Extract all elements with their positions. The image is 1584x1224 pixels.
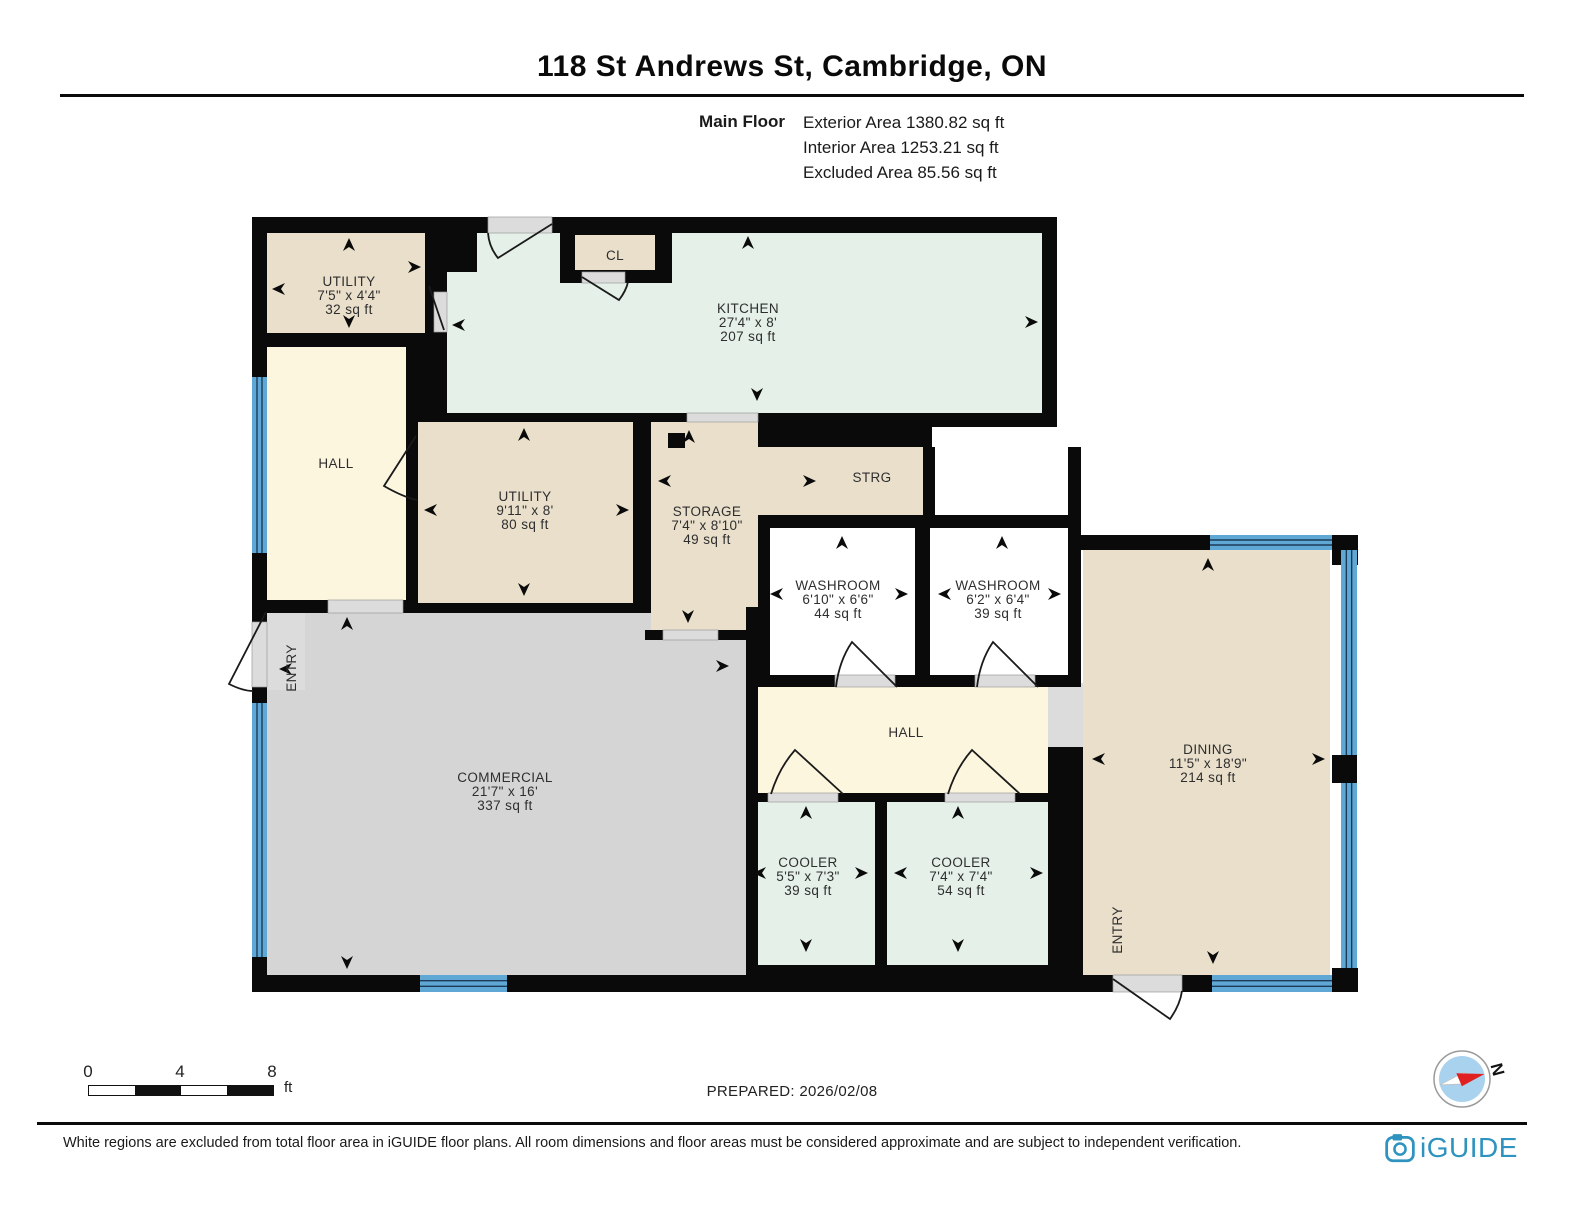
- room-label-cooler-1: COOLER5'5" x 7'3"39 sq ft: [776, 855, 839, 898]
- door-opening: [434, 292, 447, 332]
- door-opening: [252, 622, 267, 687]
- wall-segment: [758, 515, 923, 528]
- door-opening: [768, 793, 838, 802]
- room-fill: [932, 427, 1068, 528]
- window: [252, 377, 267, 553]
- wall-segment: [932, 413, 1057, 427]
- iguide-camera-icon: [1384, 1132, 1416, 1164]
- wall-segment: [633, 413, 651, 607]
- wall-segment: [252, 217, 488, 233]
- wall-segment: [1042, 218, 1057, 425]
- wall-segment: [1182, 975, 1212, 992]
- scale-tick-8: 8: [257, 1062, 287, 1082]
- wall-segment: [552, 217, 1057, 233]
- door-opening: [945, 793, 1015, 802]
- room-label-closet: CL: [606, 248, 624, 263]
- disclaimer-text: White regions are excluded from total fl…: [63, 1135, 1263, 1151]
- room-label-utility-2: UTILITY9'11" x 8'80 sq ft: [496, 489, 553, 532]
- room-label-utility-1: UTILITY7'5" x 4'4"32 sq ft: [317, 274, 380, 317]
- wall-segment: [252, 233, 267, 377]
- wall-segment: [447, 233, 477, 272]
- room-label-cooler-2: COOLER7'4" x 7'4"54 sq ft: [929, 855, 992, 898]
- door-opening: [328, 600, 403, 613]
- wall-segment: [406, 603, 651, 613]
- wall-segment: [915, 515, 1068, 528]
- wall-segment: [1068, 447, 1081, 687]
- wall-segment: [1083, 975, 1113, 992]
- footer-divider: [37, 1122, 1527, 1125]
- window: [420, 975, 507, 992]
- wall-segment: [746, 607, 758, 975]
- room-label-kitchen: KITCHEN27'4" x 8'207 sq ft: [717, 301, 779, 344]
- compass-north-label: N: [1486, 1061, 1508, 1078]
- room-label-entry-2: ENTRY: [1110, 906, 1125, 954]
- window: [252, 703, 267, 957]
- scale-tick-0: 0: [73, 1062, 103, 1082]
- wall-segment: [1081, 535, 1210, 550]
- support-column: [668, 433, 685, 448]
- door-opening: [663, 630, 718, 640]
- floor-plan-page: { "title": "118 St Andrews St, Cambridge…: [0, 0, 1584, 1224]
- wall-segment: [875, 793, 887, 975]
- wall-segment: [267, 333, 425, 347]
- iguide-logo: iGUIDE: [1384, 1132, 1518, 1164]
- room-label-hall-2: HALL: [888, 725, 923, 740]
- wall-segment: [1332, 755, 1357, 783]
- wall-segment: [507, 975, 760, 992]
- room-label-hall-1: HALL: [318, 456, 353, 471]
- wall-segment: [252, 687, 267, 703]
- wall-segment: [746, 965, 1083, 992]
- window: [1341, 550, 1357, 755]
- wall-segment: [252, 975, 420, 992]
- window: [1212, 975, 1332, 992]
- window: [1210, 535, 1332, 550]
- scale-tick-4: 4: [165, 1062, 195, 1082]
- door-opening: [1113, 975, 1182, 992]
- room-fill: [267, 347, 406, 600]
- floor-plan: UTILITY7'5" x 4'4"32 sq ftCLKITCHEN27'4"…: [0, 0, 1584, 1224]
- wall-segment: [758, 528, 770, 687]
- iguide-wordmark: iGUIDE: [1420, 1132, 1518, 1164]
- wall-segment: [406, 347, 447, 422]
- room-fill: [1048, 683, 1083, 747]
- window: [1341, 783, 1357, 968]
- room-label-strg: STRG: [852, 470, 891, 485]
- room-label-entry-1: ENTRY: [284, 644, 299, 692]
- wall-segment: [915, 528, 930, 687]
- wall-segment: [1332, 968, 1358, 992]
- door-opening: [975, 675, 1035, 687]
- wall-segment: [758, 413, 932, 447]
- door-opening: [687, 413, 758, 422]
- room-fill: [758, 687, 1048, 793]
- wall-segment: [1048, 747, 1083, 992]
- prepared-date: PREPARED: 2026/02/08: [0, 1083, 1584, 1100]
